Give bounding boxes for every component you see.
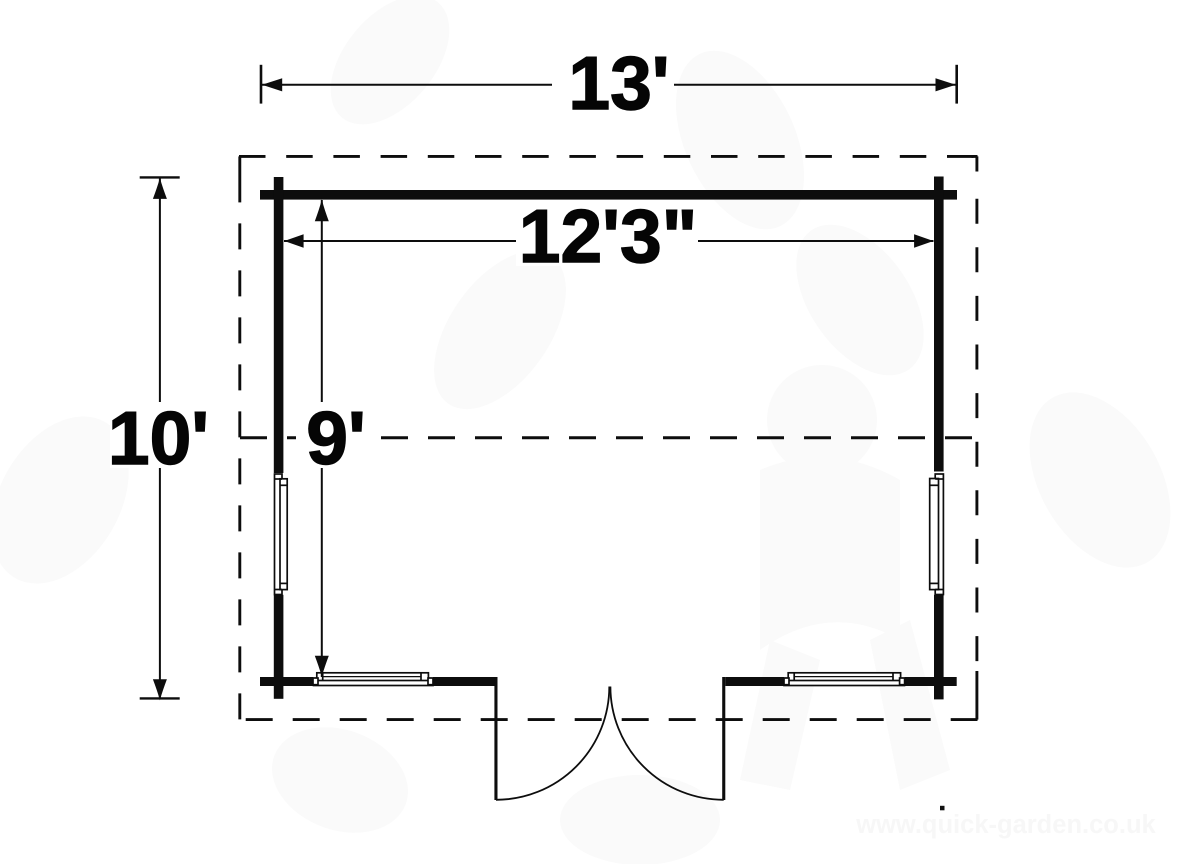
svg-text:13': 13': [568, 41, 669, 125]
svg-text:9': 9': [306, 396, 366, 480]
svg-text:10': 10': [108, 396, 209, 480]
svg-text:12'3": 12'3": [519, 194, 698, 278]
svg-text:www.quick-garden.co.uk: www.quick-garden.co.uk: [855, 811, 1156, 839]
